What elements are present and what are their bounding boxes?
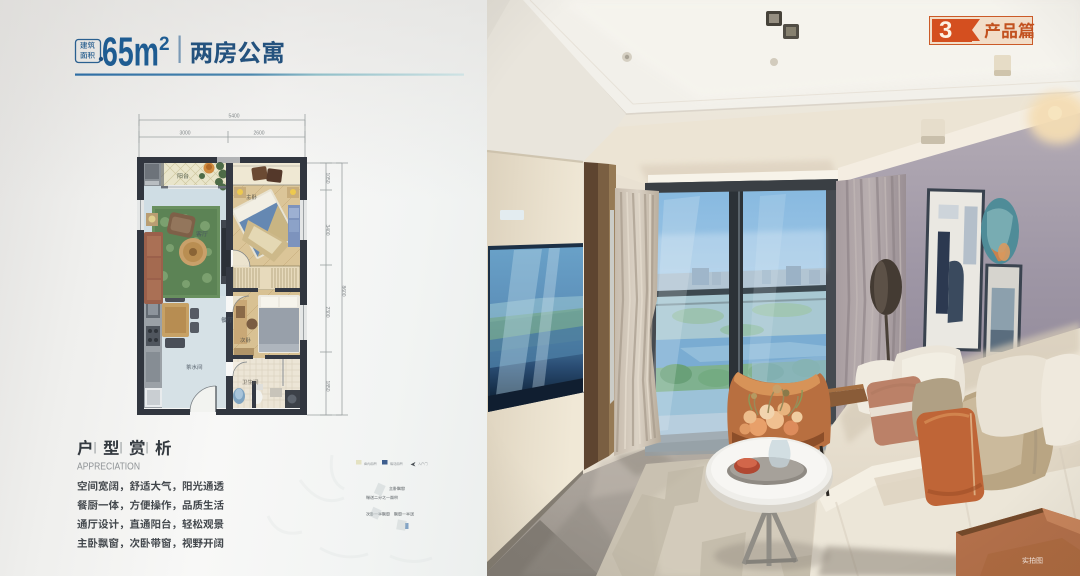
svg-text:2300: 2300 [324,306,330,317]
svg-text:2: 2 [159,34,170,55]
svg-text:2600: 2600 [253,131,264,137]
svg-text:1050: 1050 [324,172,330,183]
svg-text:3000: 3000 [179,131,190,137]
svg-text:8600: 8600 [340,285,346,296]
svg-text:5400: 5400 [228,114,239,120]
svg-text:APPRECIATION: APPRECIATION [77,462,140,473]
svg-text:3400: 3400 [324,224,330,235]
svg-text:65m: 65m [102,29,159,75]
svg-text:1850: 1850 [324,380,330,391]
